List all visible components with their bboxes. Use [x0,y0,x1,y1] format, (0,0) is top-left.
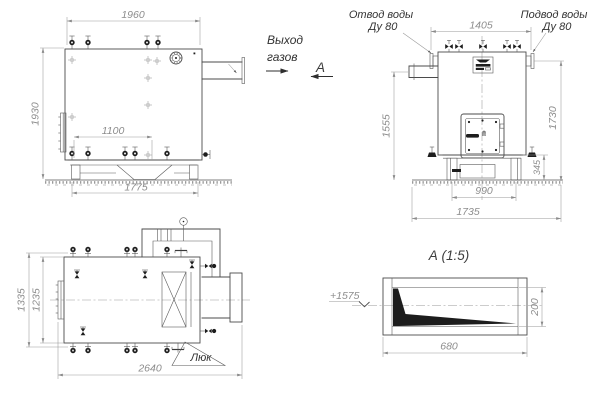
weld-profile [393,289,516,327]
dim-1730-text: 1730 [547,106,559,130]
smoke-duct-outline [142,218,220,277]
dim-1775-text: 1775 [124,182,148,194]
gas-flow-annotation: Выход газов [266,33,303,71]
dim-2640-text: 2640 [137,363,162,375]
dim-680-text: 680 [440,341,458,353]
elevation-text: +1575 [330,290,360,302]
dim-1930-text: 1930 [30,102,42,126]
dim-990-text: 990 [475,185,493,197]
dim-200-text: 200 [529,298,541,317]
anchor-foot-left [428,147,437,157]
hatch-label-text: Люк [189,352,212,364]
door-latch [482,131,485,136]
dim-1335-text: 1335 [16,288,28,312]
dim-1405-text: 1405 [469,20,493,32]
section-letter: А [315,60,325,75]
top-view: Люк 1335 1235 2640 [16,218,251,379]
label-water-outlet: Отвод воды Ду 80 [349,9,431,53]
top-valves-side [445,40,521,52]
outlet-pipe-top [202,273,242,322]
dim-345: 345 [523,155,548,180]
section-cut-mark: А [311,60,333,77]
base-frame-front [68,160,199,180]
side-valve-upper [200,264,216,269]
label-water-supply: Подвод воды Ду 80 [521,9,588,52]
drawer-handle [452,169,461,172]
technical-drawing: 1960 1930 1100 1775 Выход газов А [0,0,600,400]
explosion-hatch-box [162,272,191,327]
front-view: 1960 1930 1100 1775 [30,9,245,197]
dim-1960: 1960 [67,9,200,45]
water-supply-flange [526,54,534,69]
top-row-valves [70,247,187,257]
drawing-sheet: 1960 1930 1100 1775 Выход газов А [0,0,600,400]
top-fitting-mark [194,53,196,55]
elevation-mark: +1575 [329,290,370,307]
gas-outlet-pipe-front [202,58,245,84]
dim-1555-text: 1555 [381,114,393,138]
dim-1930: 1930 [30,48,65,179]
boiler-body-front [65,49,202,160]
hatch-callout: Люк [172,342,225,366]
anchor-foot-right [528,147,537,157]
dim-1775: 1775 [72,182,198,198]
section-a-title: А (1:5) [428,248,470,263]
dim-1100-text: 1100 [102,125,125,137]
bottom-row-valves [70,343,184,354]
top-valves-front [69,36,160,49]
dim-1555: 1555 [381,72,409,180]
side-valve-lower [200,329,216,334]
flange-circle [170,52,182,64]
water-outlet-text-line1: Отвод воды [349,9,413,21]
inner-fittings [74,260,195,335]
dim-1735-text: 1735 [456,206,480,218]
section-a: А (1:5) +1575 680 200 [329,248,546,357]
centerline-crosses [68,56,161,159]
gas-outlet-label-line1: Выход [267,33,303,47]
dim-345-text: 345 [532,159,542,175]
water-supply-text-line1: Подвод воды [521,9,588,21]
water-supply-text-line2: Ду 80 [541,21,573,33]
dim-990: 990 [452,182,516,201]
bottom-valves-front [69,147,169,160]
gas-outlet-label-line2: газов [267,50,298,64]
gas-pipe-side [409,64,438,81]
ash-drawer [460,165,495,179]
dim-200: 200 [519,288,546,327]
dim-1235-text: 1235 [31,288,43,312]
water-outlet-text-line2: Ду 80 [367,21,399,33]
dim-1960-text: 1960 [121,9,145,21]
side-view: Отвод воды Ду 80 Подвод воды Ду 80 1405 … [349,9,587,222]
drain-stub-valve [202,150,210,159]
dim-680: 680 [383,337,527,357]
door-handle [466,134,479,138]
nameplate [473,57,493,73]
furnace-door [461,114,504,158]
